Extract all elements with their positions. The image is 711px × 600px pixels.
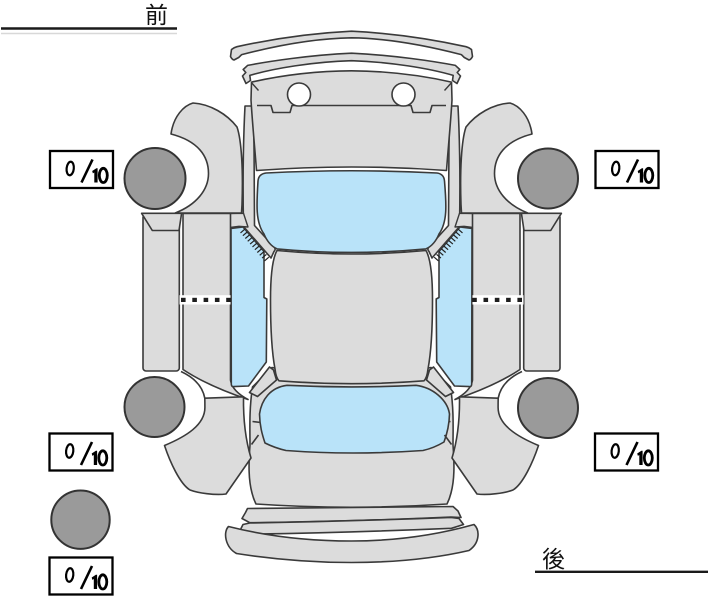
svg-text:前: 前 <box>145 2 168 28</box>
svg-text:後: 後 <box>542 546 565 572</box>
